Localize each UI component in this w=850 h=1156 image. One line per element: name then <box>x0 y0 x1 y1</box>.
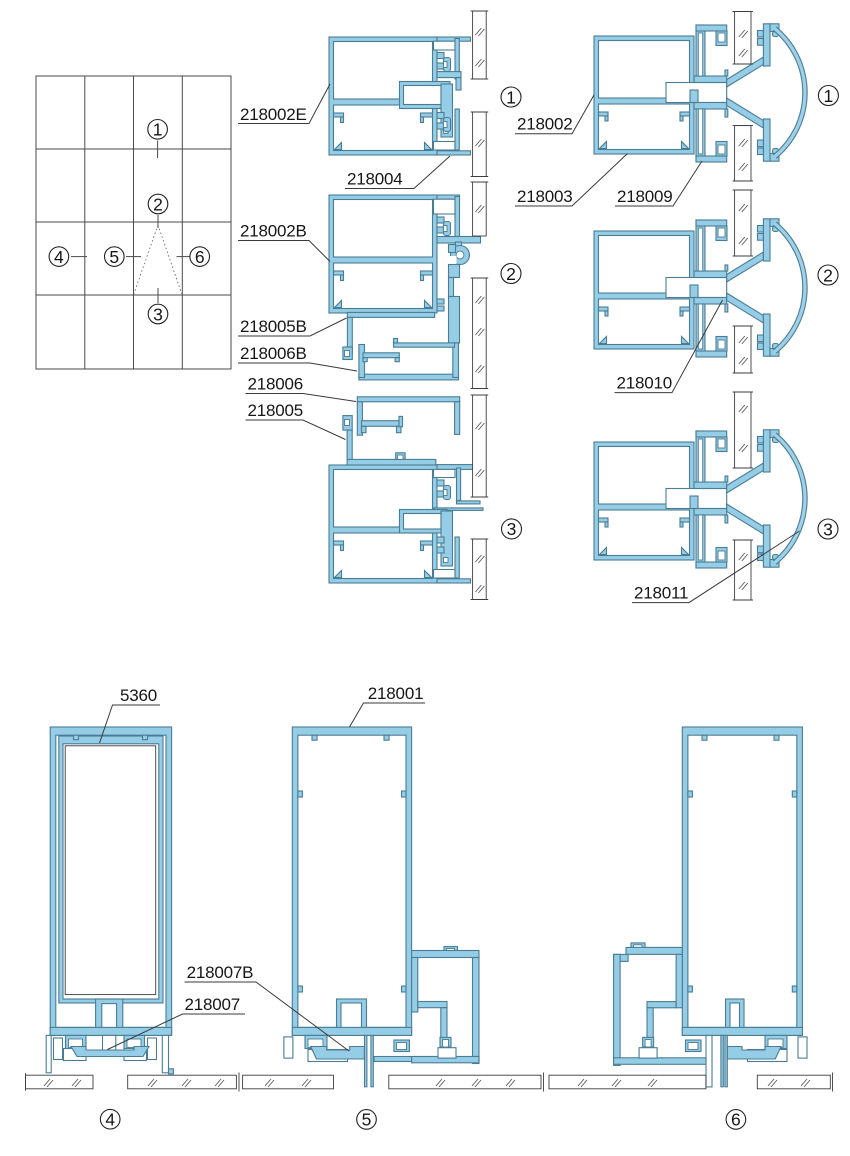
svg-text:3: 3 <box>823 519 833 539</box>
svg-text:1: 1 <box>824 86 834 106</box>
svg-text:218003: 218003 <box>517 187 573 206</box>
svg-text:218005B: 218005B <box>240 317 307 336</box>
svg-text:218001: 218001 <box>368 684 424 703</box>
svg-text:3: 3 <box>507 519 517 539</box>
svg-text:218004: 218004 <box>347 170 403 189</box>
svg-text:218006B: 218006B <box>240 344 307 363</box>
svg-text:1: 1 <box>153 120 163 140</box>
svg-text:218002B: 218002B <box>240 222 307 241</box>
svg-text:218007: 218007 <box>185 995 241 1014</box>
svg-text:218002: 218002 <box>517 115 573 134</box>
svg-text:5: 5 <box>109 247 119 267</box>
svg-text:2: 2 <box>153 194 163 214</box>
svg-text:218010: 218010 <box>617 374 673 393</box>
svg-text:6: 6 <box>731 1110 741 1130</box>
svg-text:218005: 218005 <box>248 401 304 420</box>
svg-text:5: 5 <box>362 1110 372 1130</box>
svg-text:4: 4 <box>54 247 64 267</box>
svg-text:218002E: 218002E <box>240 105 307 124</box>
svg-text:218006: 218006 <box>248 375 304 394</box>
svg-text:6: 6 <box>195 247 205 267</box>
svg-text:218007B: 218007B <box>187 963 254 982</box>
svg-text:2: 2 <box>823 265 833 285</box>
svg-text:1: 1 <box>506 87 516 107</box>
svg-text:2: 2 <box>506 264 516 284</box>
svg-text:5360: 5360 <box>120 686 157 705</box>
svg-text:218009: 218009 <box>617 187 673 206</box>
svg-text:3: 3 <box>153 304 163 324</box>
svg-text:4: 4 <box>105 1110 115 1130</box>
svg-text:218011: 218011 <box>634 584 688 603</box>
